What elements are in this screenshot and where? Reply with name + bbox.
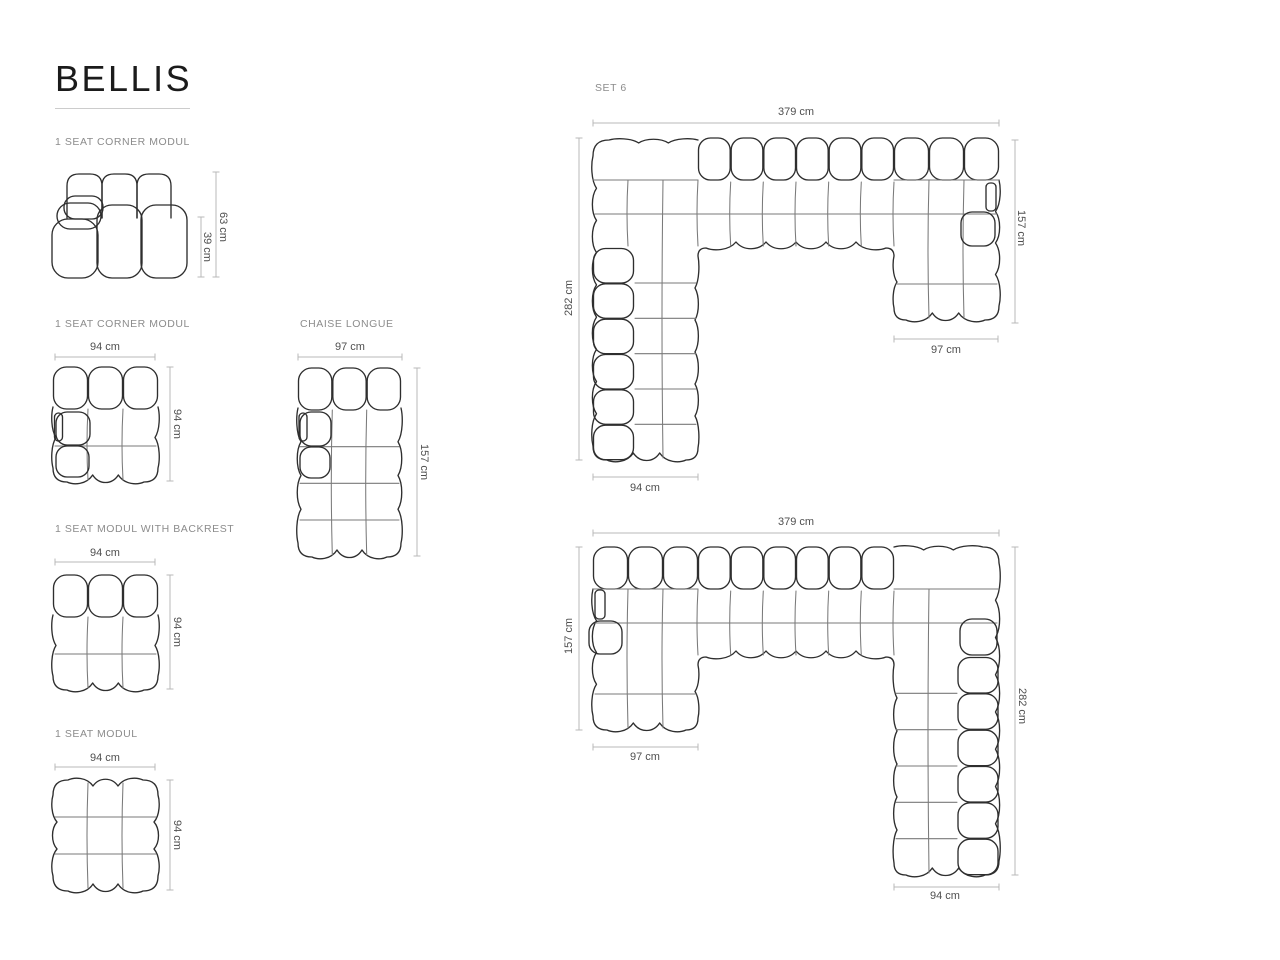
corner-top-label: 1 SEAT CORNER MODUL (55, 318, 190, 330)
set-lower-left-leg-dim: 97 cm (595, 751, 695, 763)
corner-side-label: 1 SEAT CORNER MODUL (55, 136, 190, 148)
seat-mod-label: 1 SEAT MODUL (55, 728, 138, 740)
backrest-mod-label: 1 SEAT MODUL WITH BACKREST (55, 523, 234, 535)
set-upper-left-depth-dim: 282 cm (563, 280, 575, 316)
set-lower-right-depth-dim: 282 cm (1016, 688, 1028, 724)
seat-mod-width-dim: 94 cm (55, 752, 155, 764)
set-lower-right-leg-dim: 94 cm (895, 890, 995, 902)
page-title: BELLIS (55, 58, 192, 100)
backrest-mod-width-dim: 94 cm (55, 547, 155, 559)
title-underline (55, 108, 190, 109)
set6-label: SET 6 (595, 82, 627, 94)
corner-side-height-dim: 63 cm (217, 212, 229, 242)
backrest-module-drawing (52, 575, 159, 692)
dimension-lines (55, 120, 1019, 891)
set-upper-right-depth-dim: 157 cm (1015, 210, 1027, 246)
corner-side-seat-height-dim: 39 cm (201, 232, 213, 262)
chaise-width-dim: 97 cm (300, 341, 400, 353)
set6-lower-drawing (589, 546, 1000, 877)
corner-top-depth-dim: 94 cm (171, 409, 183, 439)
backrest-mod-depth-dim: 94 cm (171, 617, 183, 647)
chaise-depth-dim: 157 cm (418, 444, 430, 480)
chaise-longue-drawing (297, 368, 402, 559)
corner-module-top-drawing (52, 367, 159, 484)
chaise-label: CHAISE LONGUE (300, 318, 394, 330)
set-upper-width-dim: 379 cm (696, 106, 896, 118)
seat-mod-depth-dim: 94 cm (171, 820, 183, 850)
corner-module-side-drawing (52, 174, 187, 278)
set-upper-left-leg-dim: 94 cm (595, 482, 695, 494)
set-upper-right-leg-dim: 97 cm (896, 344, 996, 356)
set-lower-left-depth-dim: 157 cm (563, 618, 575, 654)
set6-upper-drawing (592, 138, 1000, 462)
set-lower-width-dim: 379 cm (696, 516, 896, 528)
corner-top-width-dim: 94 cm (55, 341, 155, 353)
spec-sheet-drawings (0, 0, 1280, 960)
seat-module-drawing (52, 778, 159, 893)
